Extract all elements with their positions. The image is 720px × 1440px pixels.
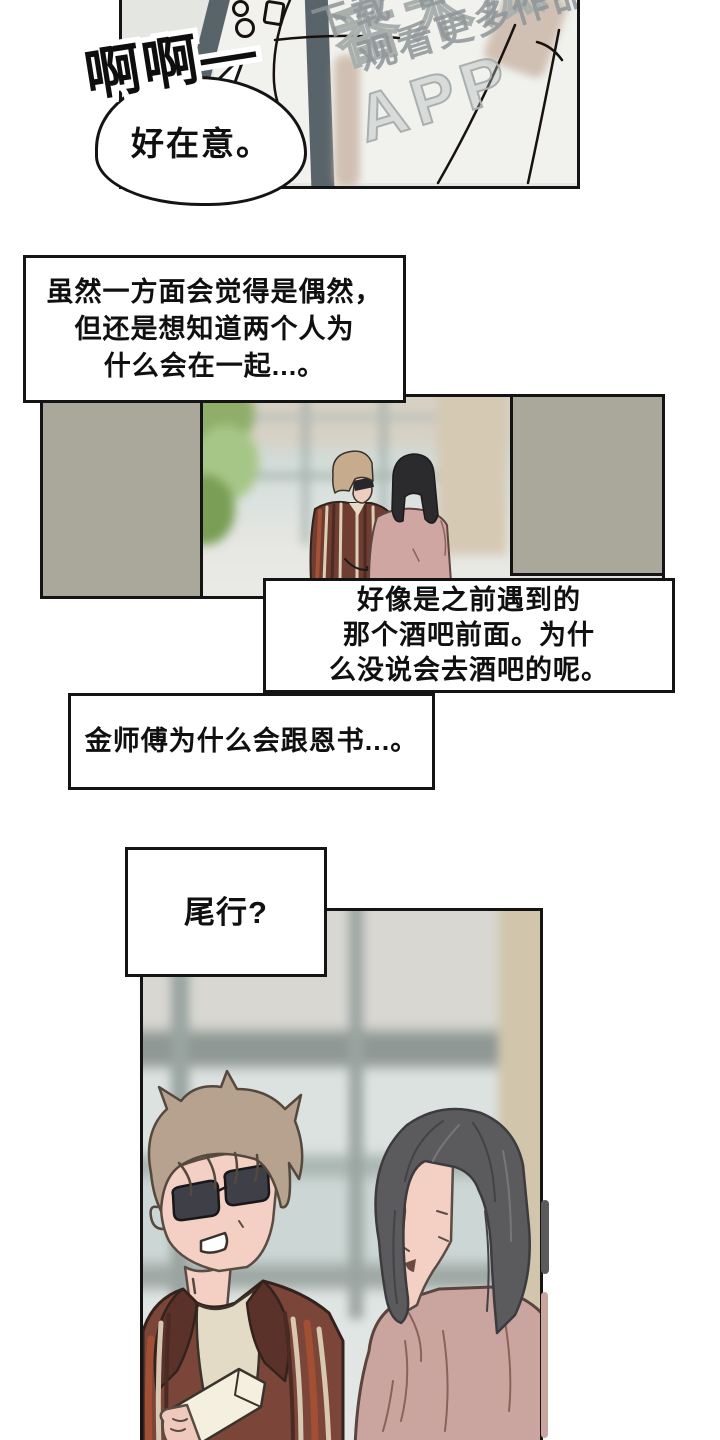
narration-line: 尾行? — [184, 894, 268, 931]
couple-figures-large — [143, 911, 543, 1440]
narration-line: 好像是之前遇到的 — [357, 583, 581, 618]
narration-line: 什么会在一起...。 — [104, 348, 326, 385]
narration-line: 虽然一方面会觉得是偶然， — [47, 274, 383, 311]
narration-box-3: 金师傅为什么会跟恩书...。 — [68, 693, 435, 790]
panel-street-wide — [40, 394, 665, 599]
sfx-fill: 啊啊— — [78, 5, 263, 112]
couple-figures-small — [197, 397, 519, 596]
pillar-left — [43, 397, 203, 596]
narration-line: 么没说会去酒吧的呢。 — [329, 653, 609, 688]
comic-page: 番木瓜APP 下载“番木瓜” 观看更多作品 啊啊— 啊啊— 好在意。 虽然一方面… — [0, 0, 720, 1440]
shirt-overflow-bit — [541, 1292, 548, 1438]
narration-box-1: 虽然一方面会觉得是偶然， 但还是想知道两个人为 什么会在一起...。 — [23, 255, 406, 403]
pillar-right — [510, 397, 662, 576]
narration-line: 但还是想知道两个人为 — [75, 311, 355, 348]
narration-box-2: 好像是之前遇到的 那个酒吧前面。为什 么没说会去酒吧的呢。 — [263, 578, 675, 693]
panel-conversation — [140, 908, 543, 1440]
hair-overflow-bit — [541, 1200, 549, 1274]
narration-box-4: 尾行? — [125, 847, 327, 977]
narration-line: 金师傅为什么会跟恩书...。 — [85, 723, 419, 760]
speech-bubble-text: 好在意。 — [131, 117, 271, 165]
narration-line: 那个酒吧前面。为什 — [343, 618, 595, 653]
street-scenery — [197, 397, 519, 596]
